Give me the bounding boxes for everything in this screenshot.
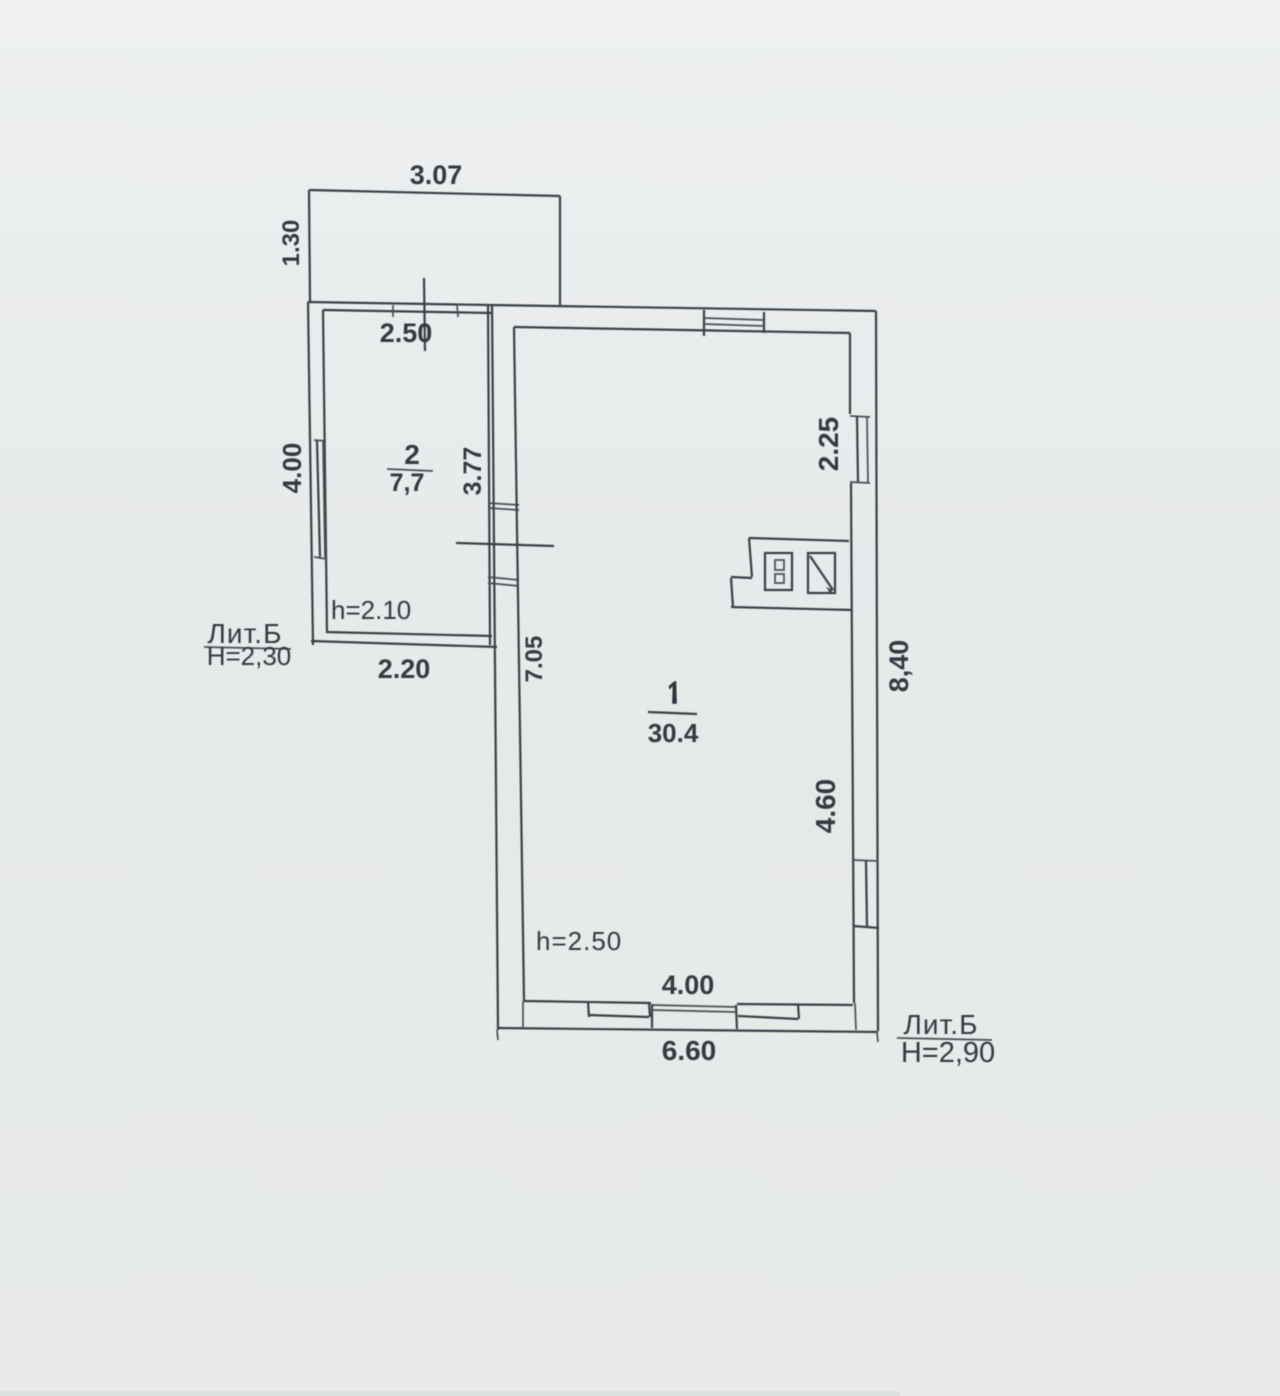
svg-text:2: 2	[404, 439, 420, 470]
svg-text:4.60: 4.60	[810, 779, 841, 834]
svg-text:2.25: 2.25	[813, 417, 844, 472]
svg-text:Лит.Б: Лит.Б	[904, 1009, 979, 1040]
svg-text:8,40: 8,40	[884, 640, 914, 693]
svg-text:Н=2,30: Н=2,30	[207, 641, 292, 671]
svg-text:30.4: 30.4	[648, 718, 699, 748]
svg-text:2.20: 2.20	[378, 654, 431, 684]
svg-text:7.05: 7.05	[521, 636, 548, 683]
svg-text:Н=2,90: Н=2,90	[901, 1037, 995, 1069]
svg-text:2.50: 2.50	[380, 318, 433, 348]
svg-text:1.30: 1.30	[278, 220, 305, 267]
svg-text:7,7: 7,7	[390, 469, 425, 497]
svg-text:3.77: 3.77	[459, 447, 487, 496]
svg-text:h=2.10: h=2.10	[331, 595, 411, 625]
svg-text:4.00: 4.00	[277, 443, 307, 494]
svg-text:4.00: 4.00	[662, 970, 715, 1000]
svg-text:h=2.50: h=2.50	[536, 926, 622, 956]
svg-text:3.07: 3.07	[410, 160, 463, 190]
svg-text:6.60: 6.60	[662, 1035, 717, 1066]
